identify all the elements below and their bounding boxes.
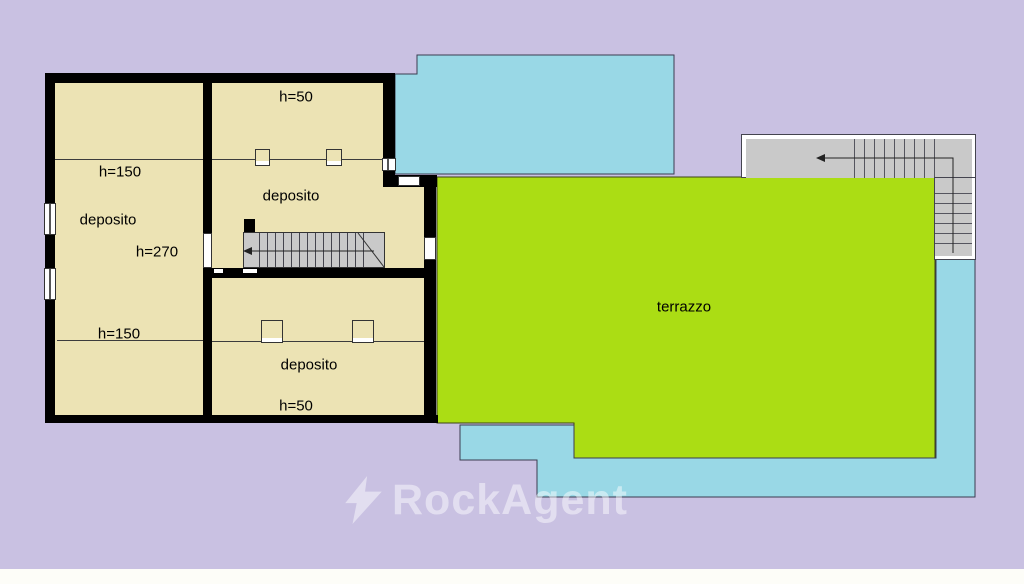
window-symbol-right: [382, 158, 396, 171]
wall-segment-right-lower: [424, 187, 436, 423]
internal-staircase-treads: [252, 233, 364, 267]
cyan-roof-area-top: [395, 55, 674, 174]
height-division-line: [212, 159, 383, 160]
footer-strip: [0, 569, 1024, 584]
door-mark-2: [243, 269, 257, 273]
room-left-deposito: [55, 83, 203, 415]
wall-segment-left: [45, 73, 55, 423]
floorplan-canvas: h=150 deposito h=270 h=150 h=50 deposito…: [0, 0, 1024, 584]
wall-segment-bottom: [45, 415, 438, 423]
door-mark-1: [214, 269, 223, 273]
height-note-left-upper: h=150: [99, 164, 141, 181]
height-note-left-center: h=270: [136, 244, 178, 261]
wall-stub-stair: [244, 219, 255, 232]
room-label-left-deposito: deposito: [80, 212, 137, 229]
height-note-lower-middle: h=50: [279, 398, 313, 415]
door-opening-jog-wall: [398, 176, 420, 186]
door-opening-middle-wall: [203, 233, 212, 268]
window-symbol-left-1: [44, 203, 56, 235]
window-symbol-left-2: [44, 268, 56, 300]
height-division-line: [212, 341, 424, 342]
external-staircase-treads-vertical: [935, 184, 972, 251]
door-opening-terrace: [424, 237, 436, 260]
height-note-upper-middle: h=50: [279, 89, 313, 106]
cyan-roof-area-bottom: [460, 258, 975, 497]
lightning-bolt-icon: [345, 476, 383, 524]
external-staircase-treads: [845, 139, 936, 178]
room-label-terrazzo: terrazzo: [657, 299, 711, 316]
column-pillar: [255, 149, 270, 166]
wall-segment-right-upper: [383, 83, 395, 187]
rockagent-logo-text: RockAgent: [392, 479, 628, 522]
wall-segment-middle-horizontal: [203, 268, 436, 278]
room-label-lower-middle-deposito: deposito: [281, 357, 338, 374]
height-note-left-lower: h=150: [98, 326, 140, 343]
terrace-area: [437, 177, 935, 458]
column-pillar: [352, 320, 374, 343]
room-label-upper-middle-deposito: deposito: [263, 188, 320, 205]
column-pillar: [326, 149, 342, 166]
height-division-line: [55, 159, 203, 160]
room-upper-middle-deposito-ext: [383, 187, 424, 268]
wall-segment-top: [45, 73, 395, 83]
column-pillar: [261, 320, 283, 343]
room-lower-middle-deposito: [212, 278, 424, 415]
watermark: RockAgent: [345, 476, 628, 524]
